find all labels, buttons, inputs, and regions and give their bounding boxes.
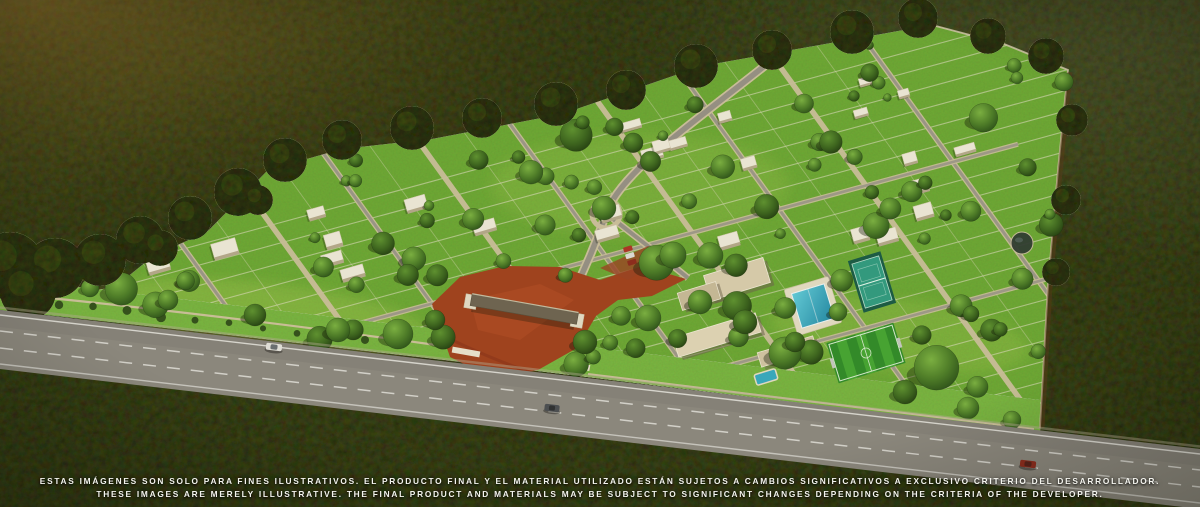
disclaimer-line-en: THESE IMAGES ARE MERELY ILLUSTRATIVE. TH… [0,488,1200,501]
aerial-development-render: ESTAS IMÁGENES SON SOLO PARA FINES ILUST… [0,0,1200,507]
disclaimer: ESTAS IMÁGENES SON SOLO PARA FINES ILUST… [0,475,1200,500]
render-canvas [0,0,1200,507]
vignette [0,0,1200,507]
disclaimer-line-es: ESTAS IMÁGENES SON SOLO PARA FINES ILUST… [0,475,1200,488]
